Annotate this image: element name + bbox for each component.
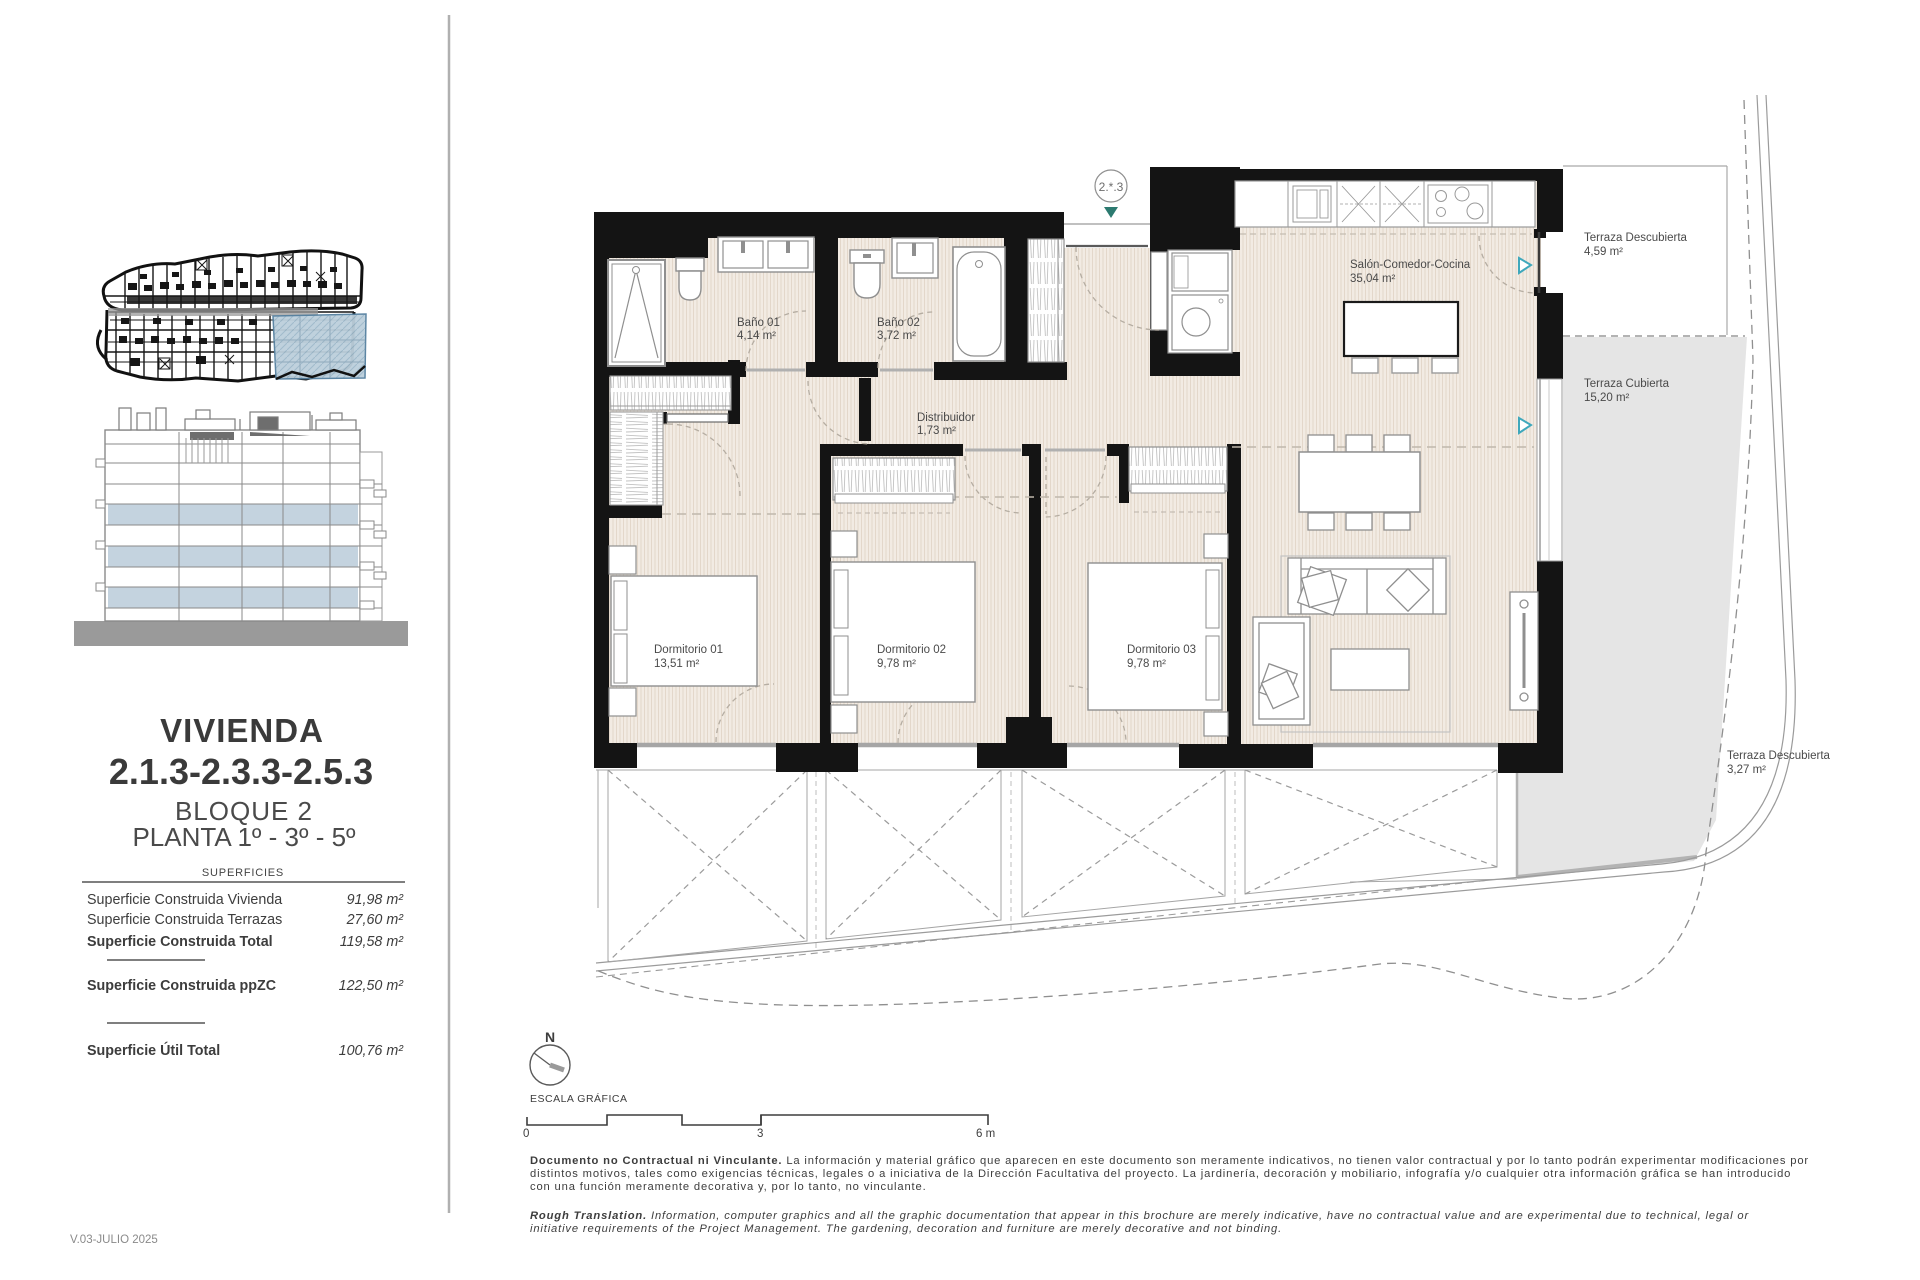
svg-text:122,50 m²: 122,50 m² [339, 978, 405, 994]
svg-text:N: N [545, 1029, 555, 1045]
svg-text:Superficie Útil Total: Superficie Útil Total [87, 1041, 220, 1059]
svg-text:Dormitorio 03: Dormitorio 03 [1127, 644, 1196, 656]
svg-text:PLANTA 1º - 3º - 5º: PLANTA 1º - 3º - 5º [132, 822, 356, 852]
svg-text:Rough Translation. Information: Rough Translation. Information, computer… [530, 1210, 1749, 1222]
svg-text:91,98 m²: 91,98 m² [347, 892, 405, 908]
svg-text:Superficie Construida ppZC: Superficie Construida ppZC [87, 978, 276, 994]
svg-text:2.*.3: 2.*.3 [1099, 180, 1124, 194]
svg-text:Superficie Construida Terrazas: Superficie Construida Terrazas [87, 912, 282, 928]
svg-text:Terraza Cubierta: Terraza Cubierta [1584, 378, 1670, 390]
svg-text:27,60 m²: 27,60 m² [346, 912, 405, 928]
svg-text:Documento no Contractual ni Vi: Documento no Contractual ni Vinculante. … [530, 1155, 1809, 1167]
svg-text:9,78 m²: 9,78 m² [1127, 658, 1166, 670]
svg-text:Baño 01: Baño 01 [737, 317, 780, 329]
svg-text:119,58 m²: 119,58 m² [340, 934, 405, 950]
svg-text:9,78 m²: 9,78 m² [877, 658, 916, 670]
svg-text:Superficie Construida Vivienda: Superficie Construida Vivienda [87, 892, 282, 908]
svg-text:SUPERFICIES: SUPERFICIES [202, 867, 284, 879]
svg-text:Terraza Descubierta: Terraza Descubierta [1584, 232, 1688, 244]
svg-text:3,72 m²: 3,72 m² [877, 330, 916, 342]
svg-text:15,20 m²: 15,20 m² [1584, 392, 1630, 404]
svg-text:ESCALA GRÁFICA: ESCALA GRÁFICA [530, 1092, 627, 1105]
svg-text:13,51 m²: 13,51 m² [654, 658, 700, 670]
svg-text:4,14 m²: 4,14 m² [737, 330, 776, 342]
svg-text:Superficie Construida Total: Superficie Construida Total [87, 934, 273, 950]
svg-text:distintos motivos, tales como: distintos motivos, tales como exigencias… [530, 1168, 1791, 1180]
svg-text:con una función meramente deco: con una función meramente decorativa y, … [530, 1181, 927, 1193]
svg-text:VIVIENDA: VIVIENDA [160, 712, 324, 749]
svg-text:3: 3 [757, 1128, 763, 1140]
svg-text:1,73 m²: 1,73 m² [917, 425, 956, 437]
svg-text:2.1.3-2.3.3-2.5.3: 2.1.3-2.3.3-2.5.3 [109, 751, 373, 792]
svg-text:Salón-Comedor-Cocina: Salón-Comedor-Cocina [1350, 259, 1471, 271]
svg-text:Dormitorio 01: Dormitorio 01 [654, 644, 723, 656]
svg-text:Dormitorio 02: Dormitorio 02 [877, 644, 946, 656]
svg-text:Baño 02: Baño 02 [877, 317, 920, 329]
svg-text:100,76 m²: 100,76 m² [339, 1043, 405, 1059]
svg-text:3,27 m²: 3,27 m² [1727, 764, 1766, 776]
svg-text:initiative requirements of the: initiative requirements of the Project M… [530, 1223, 1282, 1235]
svg-text:35,04 m²: 35,04 m² [1350, 273, 1396, 285]
svg-text:6 m: 6 m [976, 1128, 995, 1140]
svg-text:4,59 m²: 4,59 m² [1584, 246, 1623, 258]
svg-text:V.03-JULIO 2025: V.03-JULIO 2025 [70, 1234, 158, 1246]
svg-text:Distribuidor: Distribuidor [917, 412, 975, 424]
svg-text:0: 0 [523, 1128, 529, 1140]
svg-text:Terraza Descubierta: Terraza Descubierta [1727, 750, 1831, 762]
